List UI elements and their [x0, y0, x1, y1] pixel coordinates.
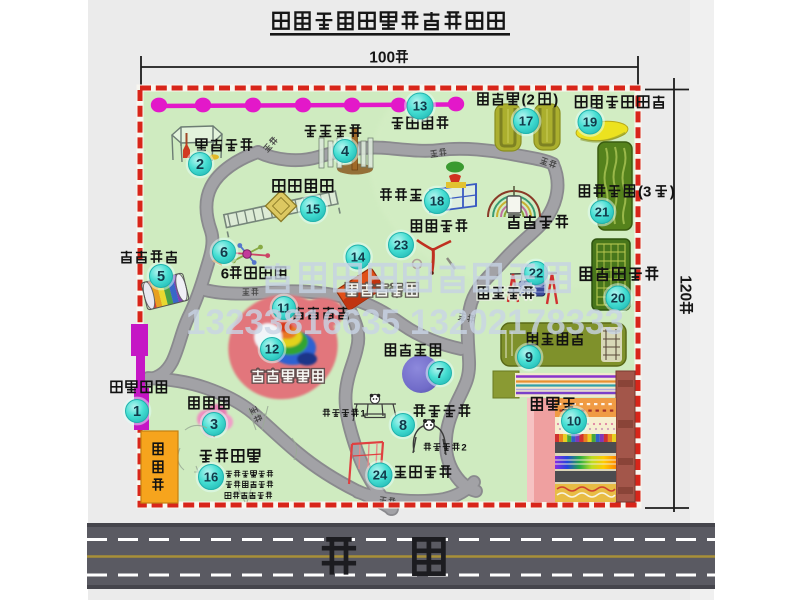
svg-text:8: 8: [399, 418, 407, 434]
svg-text:7: 7: [436, 366, 444, 382]
svg-text:19: 19: [583, 115, 597, 130]
svg-text:24: 24: [373, 468, 388, 483]
svg-text:13233816635 13202178333: 13233816635 13202178333: [186, 303, 624, 342]
svg-text:6: 6: [221, 265, 229, 282]
svg-text:18: 18: [430, 194, 444, 209]
svg-text:9: 9: [525, 350, 533, 366]
svg-text:3: 3: [210, 417, 218, 433]
svg-text:1: 1: [360, 408, 366, 419]
svg-text:1: 1: [133, 404, 141, 420]
svg-text:23: 23: [394, 238, 408, 253]
svg-text:17: 17: [519, 114, 533, 129]
svg-text:): ): [670, 183, 675, 200]
svg-text:2: 2: [196, 157, 204, 173]
svg-text:21: 21: [595, 205, 609, 220]
svg-text:14: 14: [351, 250, 366, 265]
svg-text:2: 2: [461, 442, 466, 453]
svg-text:13: 13: [413, 99, 427, 114]
svg-text:5: 5: [157, 269, 165, 285]
svg-text:120: 120: [676, 275, 693, 301]
svg-text:100: 100: [369, 50, 395, 67]
svg-text:10: 10: [567, 414, 581, 429]
svg-text:4: 4: [341, 144, 349, 160]
svg-text:16: 16: [204, 470, 218, 485]
svg-text:12: 12: [265, 342, 279, 357]
svg-text:): ): [553, 91, 558, 108]
svg-text:15: 15: [306, 202, 320, 217]
svg-text:6: 6: [220, 245, 228, 261]
svg-text:(3: (3: [638, 183, 651, 200]
